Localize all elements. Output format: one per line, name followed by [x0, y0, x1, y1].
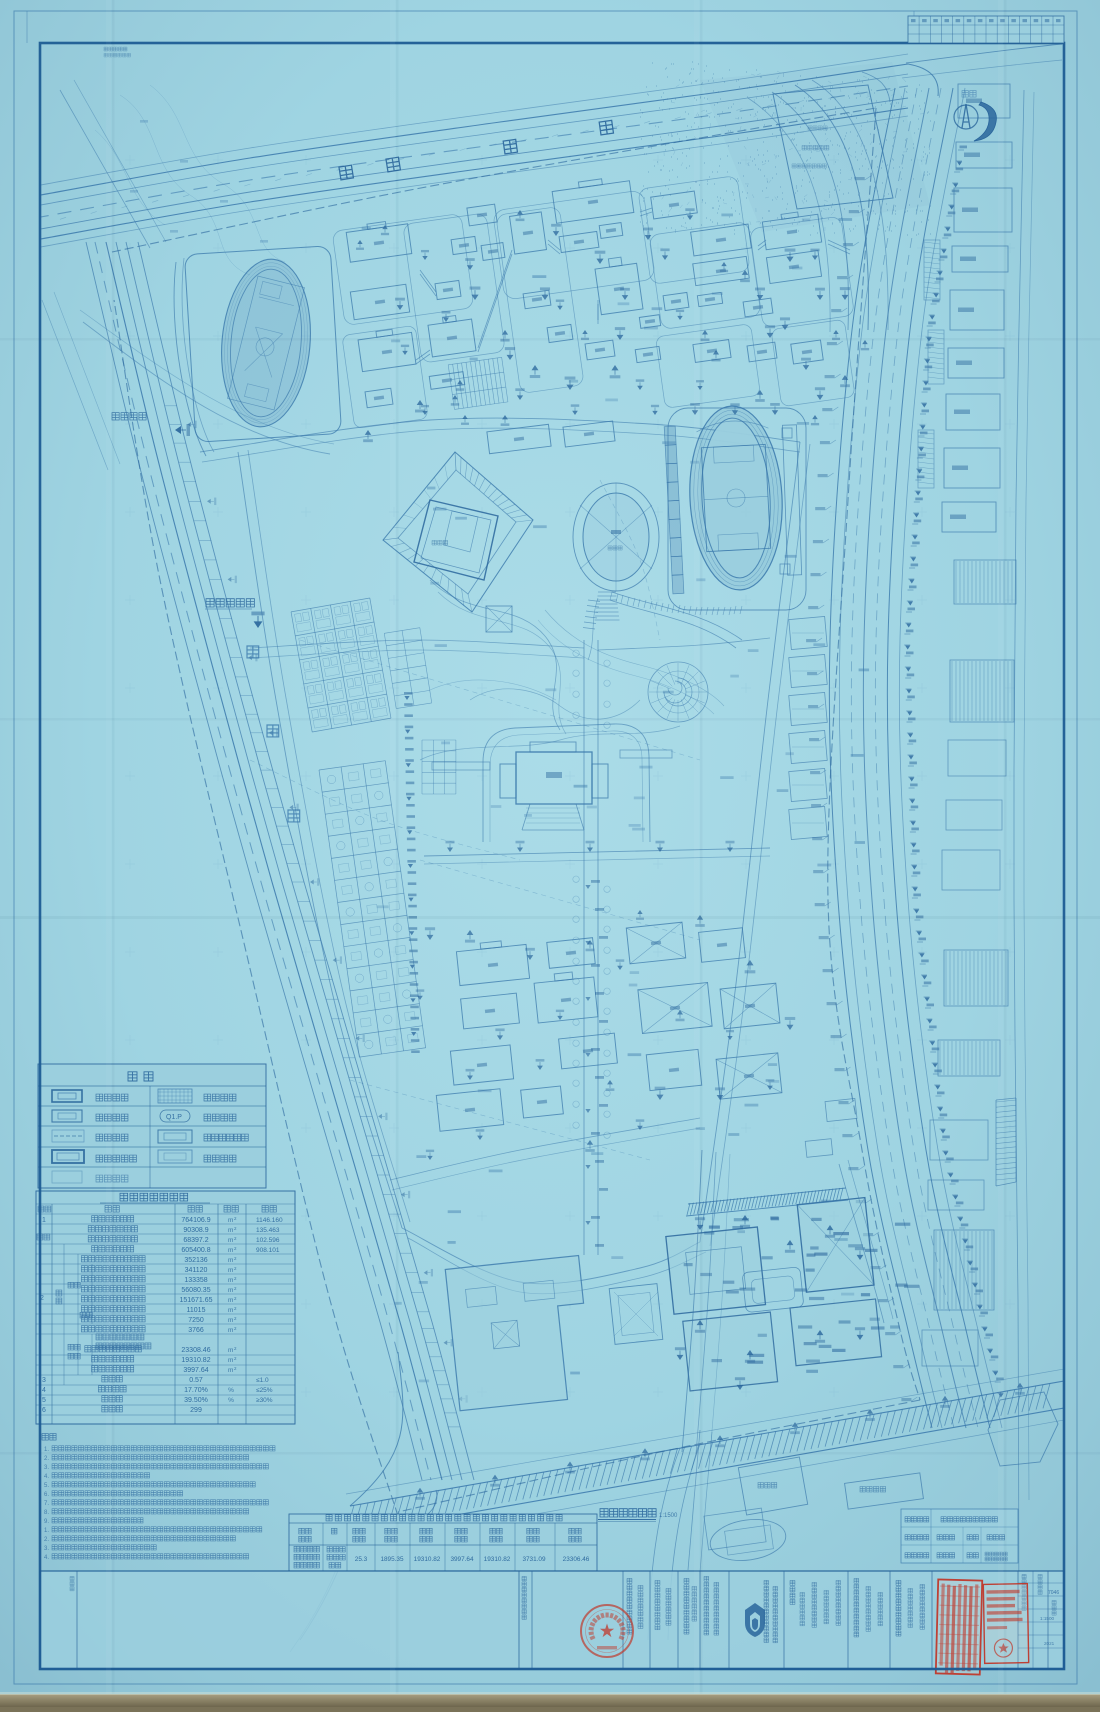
svg-text:≤1.0: ≤1.0 — [256, 1377, 269, 1384]
svg-text:2.: 2. — [44, 1456, 49, 1462]
svg-text:299: 299 — [190, 1407, 202, 1414]
svg-text:m: m — [228, 1287, 233, 1294]
svg-text:3.: 3. — [44, 1546, 49, 1552]
svg-text:2.: 2. — [44, 1537, 49, 1543]
svg-text:4: 4 — [42, 1387, 46, 1394]
svg-text:m: m — [228, 1357, 233, 1364]
svg-text:7.: 7. — [44, 1501, 49, 1507]
svg-text:341120: 341120 — [185, 1267, 208, 1274]
svg-text:m: m — [228, 1297, 233, 1304]
svg-text:1: 1 — [42, 1217, 46, 1224]
svg-text:6: 6 — [42, 1407, 46, 1414]
svg-text:3731.09: 3731.09 — [522, 1556, 546, 1563]
svg-text:17.70%: 17.70% — [184, 1387, 208, 1394]
svg-text:≥30%: ≥30% — [256, 1397, 273, 1404]
svg-text:m: m — [228, 1307, 233, 1314]
svg-text:m: m — [228, 1267, 233, 1274]
svg-text:135.463: 135.463 — [256, 1227, 280, 1234]
svg-text:4.: 4. — [44, 1555, 49, 1561]
svg-text:90308.9: 90308.9 — [183, 1227, 208, 1234]
svg-text:m: m — [228, 1217, 233, 1224]
svg-text:4.: 4. — [44, 1474, 49, 1480]
svg-text:m: m — [228, 1247, 233, 1254]
svg-text:9.: 9. — [44, 1519, 49, 1525]
svg-text:908.101: 908.101 — [256, 1247, 280, 1254]
svg-text:2021: 2021 — [1044, 1641, 1055, 1646]
svg-text:3997.64: 3997.64 — [450, 1556, 474, 1563]
svg-text:23308.46: 23308.46 — [181, 1347, 210, 1354]
svg-text:%: % — [228, 1387, 234, 1394]
svg-text:19310.82: 19310.82 — [484, 1556, 511, 1563]
svg-text:68397.2: 68397.2 — [183, 1237, 208, 1244]
svg-text:3: 3 — [42, 1377, 46, 1384]
svg-text:Q1.P: Q1.P — [166, 1114, 182, 1121]
svg-text:1.: 1. — [44, 1528, 49, 1534]
svg-text:5: 5 — [42, 1397, 46, 1404]
svg-text:7250: 7250 — [188, 1317, 204, 1324]
svg-text:0.57: 0.57 — [189, 1377, 203, 1384]
svg-text:3997.64: 3997.64 — [183, 1367, 208, 1374]
svg-text:m: m — [228, 1237, 233, 1244]
svg-text:m: m — [228, 1257, 233, 1264]
svg-text:7046: 7046 — [1048, 1590, 1059, 1596]
svg-text:19310.82: 19310.82 — [181, 1357, 210, 1364]
svg-text:%: % — [228, 1397, 234, 1404]
svg-text:1146.160: 1146.160 — [256, 1217, 283, 1224]
svg-text:6.: 6. — [44, 1492, 49, 1498]
svg-text:5.: 5. — [44, 1483, 49, 1489]
svg-text:23306.46: 23306.46 — [563, 1556, 590, 1563]
svg-text:764106.9: 764106.9 — [181, 1217, 210, 1224]
svg-text:m: m — [228, 1227, 233, 1234]
svg-text:m: m — [228, 1277, 233, 1284]
svg-text:133358: 133358 — [184, 1277, 207, 1284]
svg-text:352136: 352136 — [184, 1257, 207, 1264]
svg-text:8.: 8. — [44, 1510, 49, 1516]
svg-text:25.3: 25.3 — [355, 1556, 368, 1563]
svg-text:39.50%: 39.50% — [184, 1397, 208, 1404]
svg-text:3.: 3. — [44, 1465, 49, 1471]
svg-text:m: m — [228, 1367, 233, 1374]
svg-text:151671.65: 151671.65 — [179, 1297, 212, 1304]
svg-text:1:1500: 1:1500 — [659, 1513, 678, 1519]
svg-text:19310.82: 19310.82 — [414, 1556, 441, 1563]
svg-text:m: m — [228, 1317, 233, 1324]
svg-text:m: m — [228, 1347, 233, 1354]
svg-text:56080.35: 56080.35 — [181, 1287, 210, 1294]
svg-text:11015: 11015 — [187, 1307, 206, 1314]
svg-text:≤25%: ≤25% — [256, 1387, 273, 1394]
svg-text:605400.8: 605400.8 — [181, 1247, 210, 1254]
svg-text:1:1500: 1:1500 — [1040, 1616, 1054, 1621]
svg-text:m: m — [228, 1327, 233, 1334]
svg-text:102.596: 102.596 — [256, 1237, 280, 1244]
svg-text:3766: 3766 — [188, 1327, 204, 1334]
